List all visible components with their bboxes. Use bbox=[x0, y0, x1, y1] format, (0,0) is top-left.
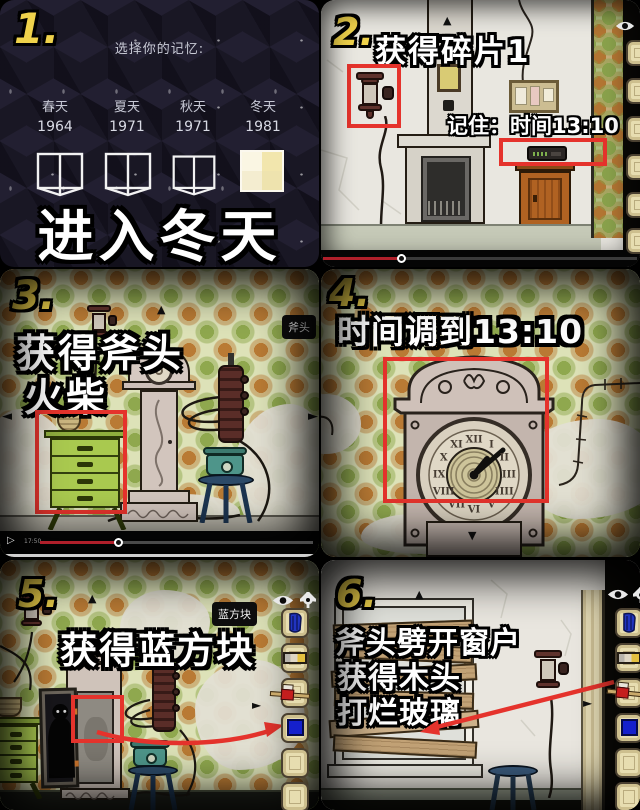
note bbox=[515, 87, 527, 105]
blue-cube-icon bbox=[621, 719, 638, 736]
caption-enter-winter: 进入冬天 bbox=[38, 192, 282, 267]
progress-fill bbox=[40, 541, 118, 544]
memory-cube-summer[interactable] bbox=[102, 150, 154, 198]
eye-icon[interactable] bbox=[272, 594, 294, 607]
fire-grate bbox=[428, 201, 464, 215]
season-year: 1971 bbox=[96, 119, 158, 135]
stool-legs bbox=[198, 483, 254, 523]
caption-set-time: 时间调到13:10 bbox=[337, 305, 583, 353]
matchbox-icon bbox=[283, 652, 307, 664]
up-nav-icon[interactable]: ▲ bbox=[415, 588, 423, 601]
step-number-4: 4. bbox=[329, 271, 370, 315]
separator-line bbox=[0, 554, 319, 557]
cube-quadrant bbox=[242, 171, 262, 190]
panel-6-boarded-window: ▲ ► 6. 斧头劈开窗户 获得木头 打烂玻璃 bbox=[321, 560, 640, 810]
axe-icon bbox=[257, 682, 310, 706]
step-number-1: 1. bbox=[14, 4, 59, 53]
inventory-slot-empty[interactable] bbox=[615, 782, 640, 810]
cube-quadrant bbox=[262, 171, 282, 190]
walkthrough-collage: 1. 选择你的记忆: 春天 1964 夏天 1971 秋天 1971 冬天 19… bbox=[0, 0, 640, 810]
season-name: 冬天 bbox=[232, 96, 294, 115]
blue-gloves-icon bbox=[286, 612, 304, 634]
eye-icon[interactable] bbox=[615, 20, 635, 32]
step-number-2: 2. bbox=[333, 10, 374, 54]
up-nav-icon[interactable]: ▲ bbox=[88, 592, 96, 605]
tooltip-blue-cube: 蓝方块 bbox=[212, 602, 257, 626]
cube-quadrant bbox=[242, 152, 262, 171]
season-year: 1981 bbox=[232, 119, 294, 135]
blue-gloves-icon bbox=[620, 612, 638, 634]
panel-4-clock-face: XIIIIIIIIIIIIVVIVIIVIIIIXXXI ▼ 4. 时间调到13… bbox=[321, 269, 640, 557]
gear-icon[interactable] bbox=[300, 592, 316, 608]
right-nav-icon[interactable]: ► bbox=[308, 409, 318, 424]
video-player-bar[interactable]: ▷ 17:50 bbox=[0, 533, 319, 554]
up-nav-icon[interactable]: ▲ bbox=[157, 303, 165, 316]
highlight-radio bbox=[499, 138, 607, 166]
note bbox=[530, 86, 540, 106]
highlight-grinder bbox=[347, 64, 401, 128]
blue-cube-icon bbox=[287, 719, 304, 736]
season-name: 夏天 bbox=[96, 96, 158, 115]
down-nav-icon[interactable]: ▼ bbox=[468, 529, 476, 542]
highlight-clock bbox=[383, 357, 549, 503]
play-icon[interactable]: ▷ bbox=[7, 535, 15, 546]
inventory-slot[interactable] bbox=[626, 228, 640, 254]
step-number-6: 6. bbox=[336, 572, 377, 616]
video-progress-bar[interactable] bbox=[321, 250, 640, 267]
memory-cube-spring[interactable] bbox=[34, 150, 86, 198]
season-winter[interactable]: 冬天 1981 bbox=[232, 96, 294, 135]
note bbox=[543, 88, 554, 102]
gear-icon[interactable] bbox=[633, 587, 640, 603]
bulletin-board[interactable] bbox=[509, 80, 559, 113]
memory-cube-winter-selected[interactable] bbox=[240, 150, 284, 192]
highlight-dresser bbox=[35, 410, 127, 514]
step-number-5: 5. bbox=[18, 572, 59, 616]
season-spring[interactable]: 春天 1964 bbox=[24, 96, 86, 135]
progress-fill bbox=[323, 257, 401, 260]
wooden-cabinet[interactable] bbox=[519, 171, 571, 226]
inventory-slot-empty[interactable] bbox=[615, 748, 640, 778]
season-autumn[interactable]: 秋天 1971 bbox=[162, 96, 224, 135]
cube-quadrant bbox=[262, 152, 282, 171]
firebox[interactable] bbox=[421, 156, 471, 222]
panel-1-memory-select: 1. 选择你的记忆: 春天 1964 夏天 1971 秋天 1971 冬天 19… bbox=[0, 0, 319, 267]
season-name: 秋天 bbox=[162, 96, 224, 115]
inventory-slot[interactable] bbox=[626, 116, 640, 142]
inventory-slot-empty[interactable] bbox=[281, 782, 309, 810]
tooltip-axe: 斧头 bbox=[282, 315, 316, 339]
season-year: 1964 bbox=[24, 119, 86, 135]
season-name: 春天 bbox=[24, 96, 86, 115]
elapsed-time: 17:50 bbox=[24, 538, 41, 545]
season-year: 1971 bbox=[162, 119, 224, 135]
inventory-slot[interactable] bbox=[626, 40, 640, 66]
progress-knob[interactable] bbox=[114, 538, 123, 547]
inventory-slot[interactable] bbox=[626, 192, 640, 218]
panel-3-green-room: ▲ ◄ ► 斧头 3. 获得斧头 火柴 ▷ 17:50 bbox=[0, 269, 319, 557]
inventory-slot[interactable] bbox=[626, 154, 640, 180]
floor bbox=[321, 224, 601, 252]
progress-knob[interactable] bbox=[397, 254, 406, 263]
panel-5-blue-cube: 蓝方块 ▲ ► 5. 获得蓝方块 bbox=[0, 560, 319, 810]
inventory-slot-empty[interactable] bbox=[281, 748, 309, 778]
note-remember-time: 记住：时间13:10 bbox=[447, 110, 619, 140]
inventory-slot[interactable] bbox=[626, 78, 640, 104]
left-nav-icon[interactable]: ◄ bbox=[2, 409, 12, 424]
intercom-stem bbox=[228, 353, 234, 365]
panel-2-fireplace-room: ▲ bbox=[321, 0, 640, 267]
up-nav-icon[interactable]: ▲ bbox=[443, 14, 451, 27]
eye-icon[interactable] bbox=[607, 588, 629, 601]
season-summer[interactable]: 夏天 1971 bbox=[96, 96, 158, 135]
cabinet-knob bbox=[533, 195, 537, 202]
telephone[interactable] bbox=[206, 454, 244, 476]
step-number-3: 3. bbox=[12, 273, 55, 319]
right-nav-icon[interactable]: ► bbox=[583, 696, 592, 710]
matchbox-icon bbox=[617, 652, 640, 664]
